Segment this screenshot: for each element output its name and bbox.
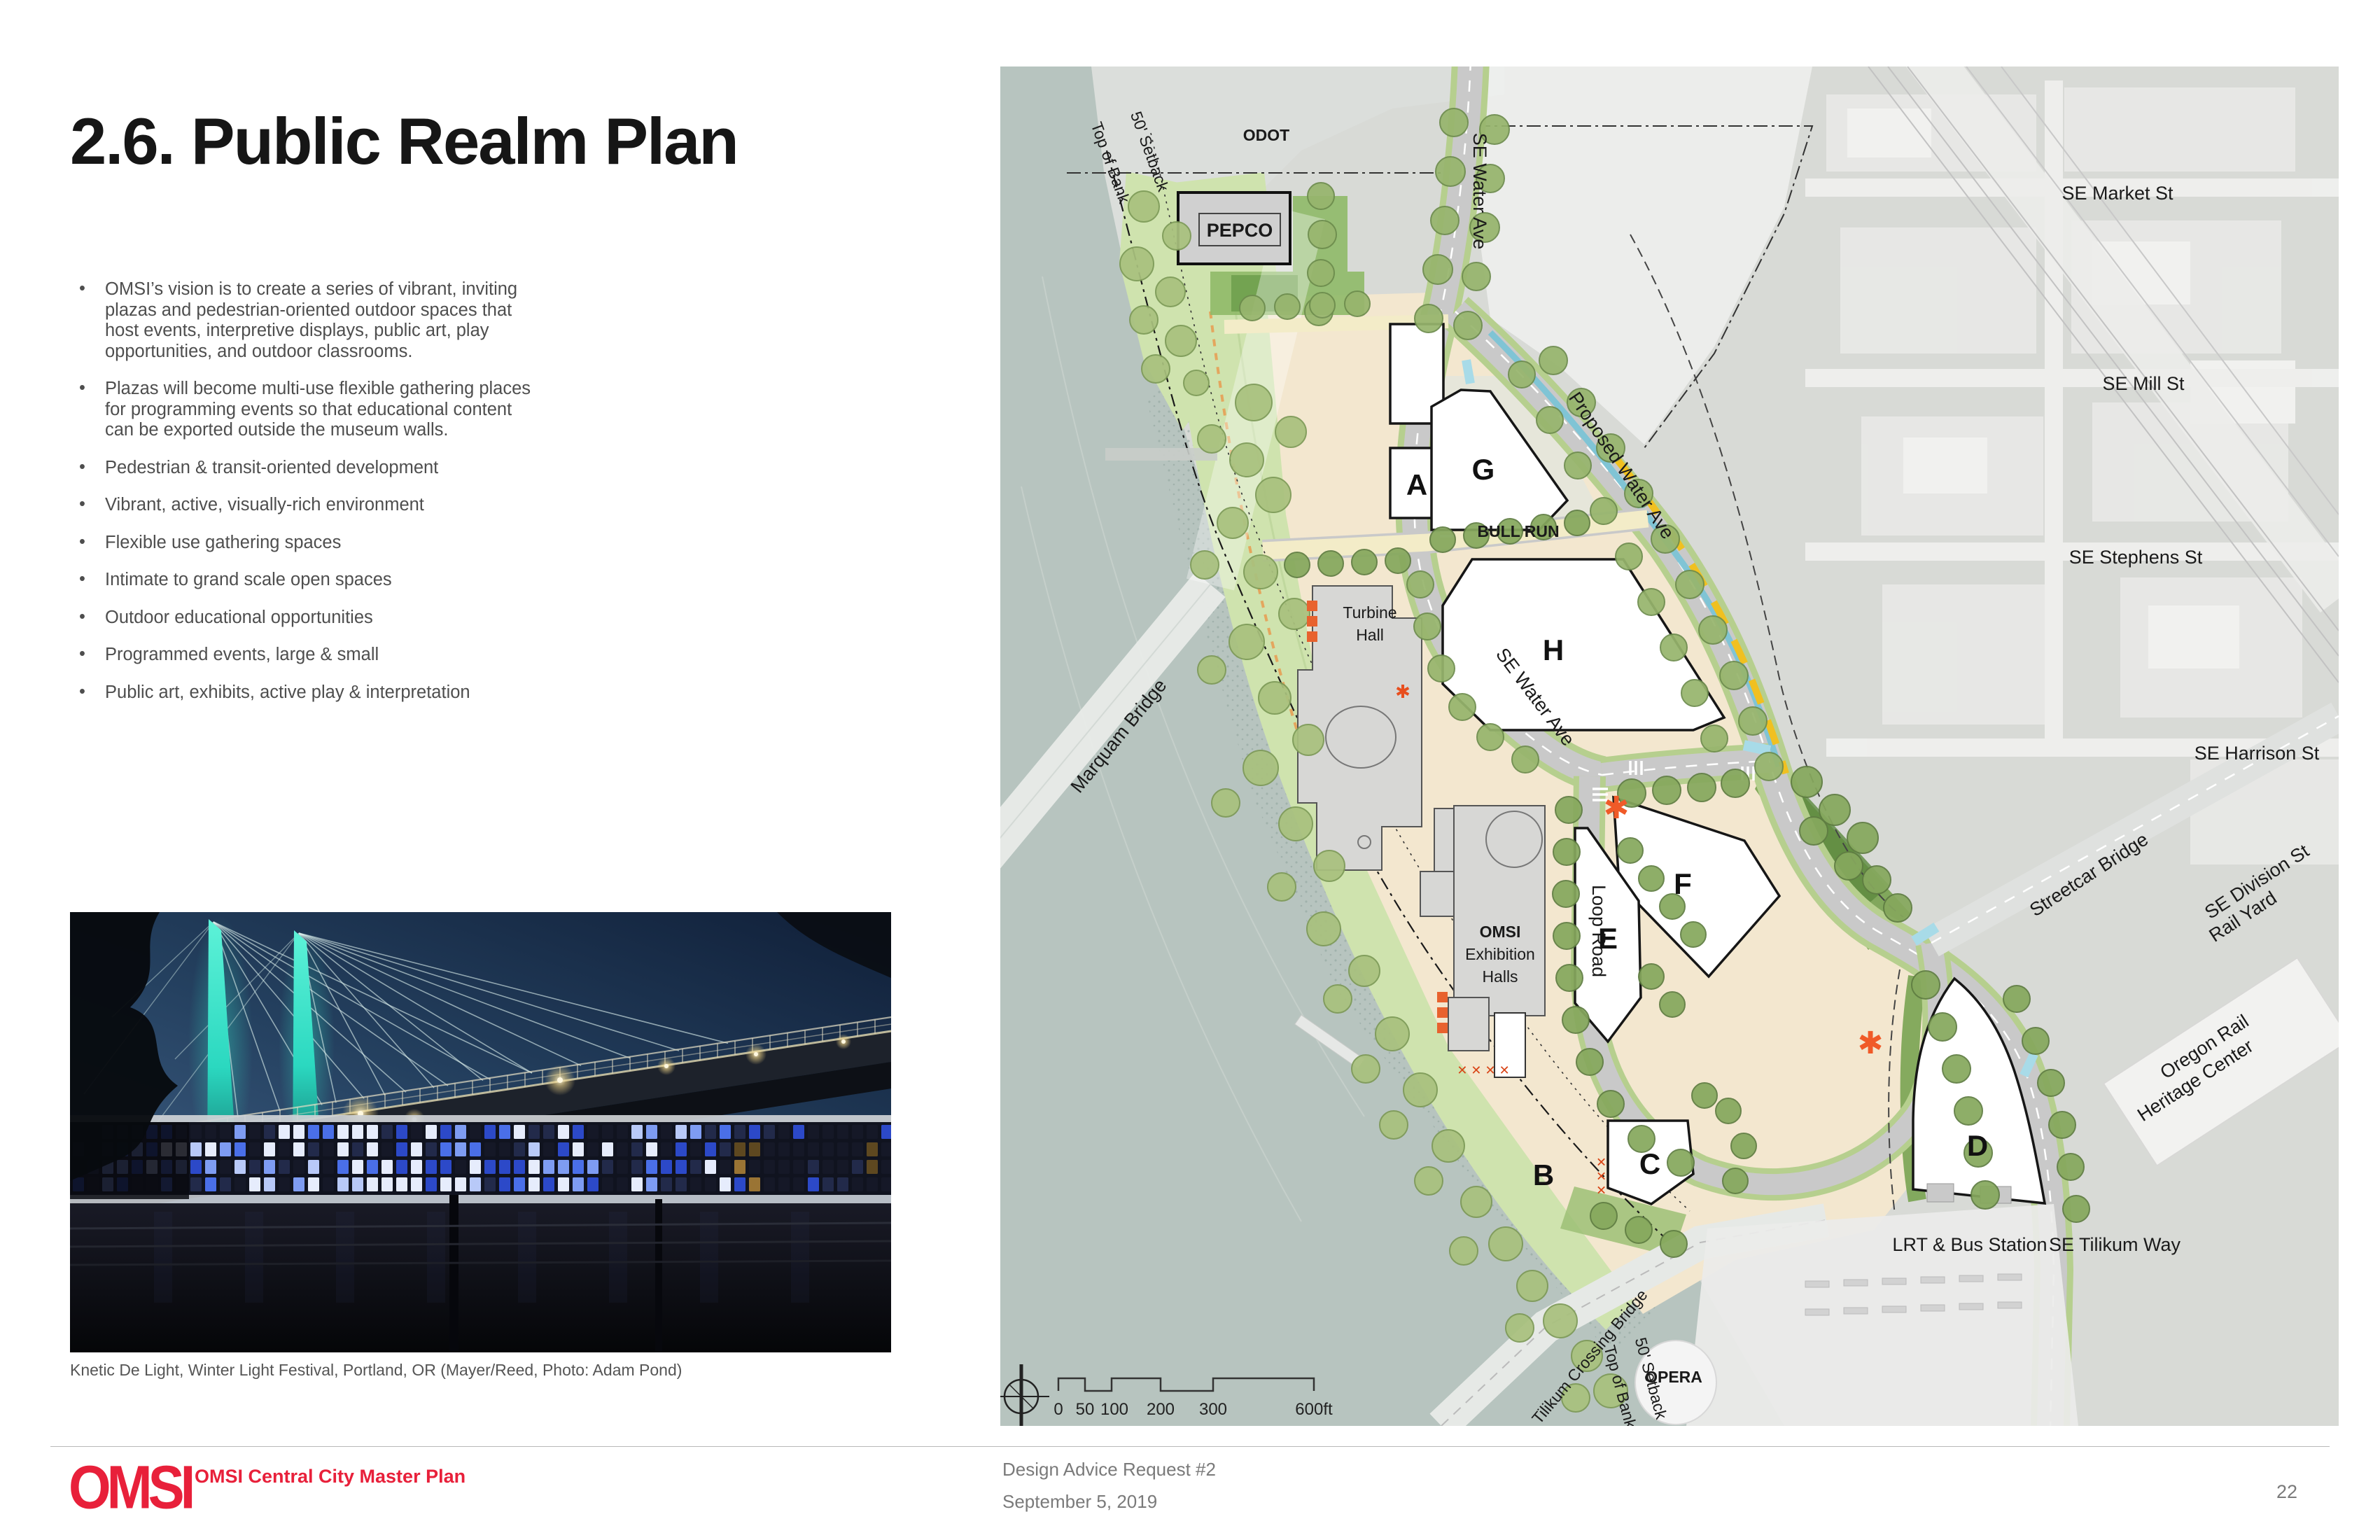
map-label-omsi: Halls: [1482, 967, 1518, 986]
building-label-e: E: [1598, 922, 1618, 955]
building-label-f: F: [1674, 867, 1692, 900]
pier: [1105, 448, 1217, 461]
map-label-lrt-bus-station: LRT & Bus Station: [1892, 1234, 2047, 1255]
scale-tick: 200: [1147, 1400, 1175, 1419]
svg-text:✕ ✕ ✕ ✕: ✕ ✕ ✕ ✕: [1457, 1063, 1509, 1077]
map-label-se-mill-st: SE Mill St: [2102, 373, 2185, 394]
building-label-h: H: [1543, 633, 1564, 666]
building-label-d: D: [1967, 1129, 1988, 1162]
map-label-se-water-ave-top: SE Water Ave: [1469, 133, 1490, 250]
bullet-item: Flexible use gathering spaces: [73, 533, 538, 554]
wall-bottom-rail: [70, 1195, 891, 1203]
bullet-item: Programmed events, large & small: [73, 645, 538, 666]
map-label-bull-run: BULL RUN: [1477, 522, 1559, 540]
scale-tick: 300: [1199, 1400, 1227, 1419]
page-number: 22: [2276, 1481, 2297, 1503]
site-plan-map: ✱ ✱ ✱ ✕ ✕ ✕ ✕ ✕ ✕ ✕ ODOT PEPCO SE Water …: [1000, 66, 2339, 1426]
scale-tick: 0: [1053, 1400, 1063, 1419]
svg-text:✕ ✕ ✕: ✕ ✕ ✕: [1594, 1156, 1608, 1195]
map-label-omsi: Exhibition: [1465, 945, 1535, 963]
railing-post: [449, 1195, 458, 1352]
map-label-pepco: PEPCO: [1207, 220, 1273, 241]
building-label-g: G: [1472, 453, 1495, 486]
map-label-se-market-st: SE Market St: [2061, 183, 2173, 204]
building-label-b: B: [1533, 1158, 1554, 1191]
bullet-item: Public art, exhibits, active play & inte…: [73, 682, 538, 703]
map-label-se-tilikum-way: SE Tilikum Way: [2049, 1234, 2181, 1255]
map-label-se-harrison-st: SE Harrison St: [2194, 743, 2320, 764]
footer-doc-title: Design Advice Request #2: [1002, 1459, 1216, 1480]
page-title: 2.6. Public Realm Plan: [70, 104, 738, 179]
site-plan-svg: ✱ ✱ ✱ ✕ ✕ ✕ ✕ ✕ ✕ ✕ ODOT PEPCO SE Water …: [1000, 66, 2339, 1426]
building-label-a: A: [1406, 468, 1427, 501]
photo-tilikum-light-festival: [70, 912, 891, 1352]
railing-post: [655, 1199, 662, 1352]
svg-text:✱: ✱: [1395, 681, 1410, 702]
bullet-item: Vibrant, active, visually-rich environme…: [73, 495, 538, 516]
bullet-item: Pedestrian & transit-oriented developmen…: [73, 458, 538, 479]
scale-tick: 600ft: [1295, 1400, 1333, 1419]
omsi-logo: OMSI: [69, 1452, 191, 1523]
slide: 2.6. Public Realm Plan OMSI’s vision is …: [0, 0, 2380, 1540]
bullet-item: Outdoor educational opportunities: [73, 608, 538, 629]
svg-text:✱: ✱: [1858, 1026, 1884, 1060]
scale-tick: 100: [1100, 1400, 1128, 1419]
map-label-se-stephens-st: SE Stephens St: [2069, 547, 2203, 568]
photo-caption: Knetic De Light, Winter Light Festival, …: [70, 1361, 682, 1380]
bullet-item: OMSI’s vision is to create a series of v…: [73, 279, 538, 362]
bullet-item: Plazas will become multi-use flexible ga…: [73, 379, 538, 441]
footer-divider: [50, 1446, 2330, 1447]
bullet-list: OMSI’s vision is to create a series of v…: [73, 279, 538, 720]
scale-tick: 50: [1076, 1400, 1095, 1419]
map-label-turbine-hall: Turbine: [1343, 603, 1396, 622]
map-label-turbine-hall: Hall: [1356, 626, 1384, 644]
photo-illustration: [70, 912, 891, 1352]
map-label-odot: ODOT: [1243, 126, 1289, 144]
footer-doc-date: September 5, 2019: [1002, 1491, 1157, 1513]
svg-text:✱: ✱: [1604, 791, 1630, 825]
wall-top-rail: [70, 1115, 891, 1122]
building-label-c: C: [1639, 1147, 1660, 1180]
bullet-item: Intimate to grand scale open spaces: [73, 570, 538, 591]
map-label-omsi: OMSI: [1480, 923, 1521, 941]
footer-plan-title: OMSI Central City Master Plan: [195, 1466, 465, 1487]
